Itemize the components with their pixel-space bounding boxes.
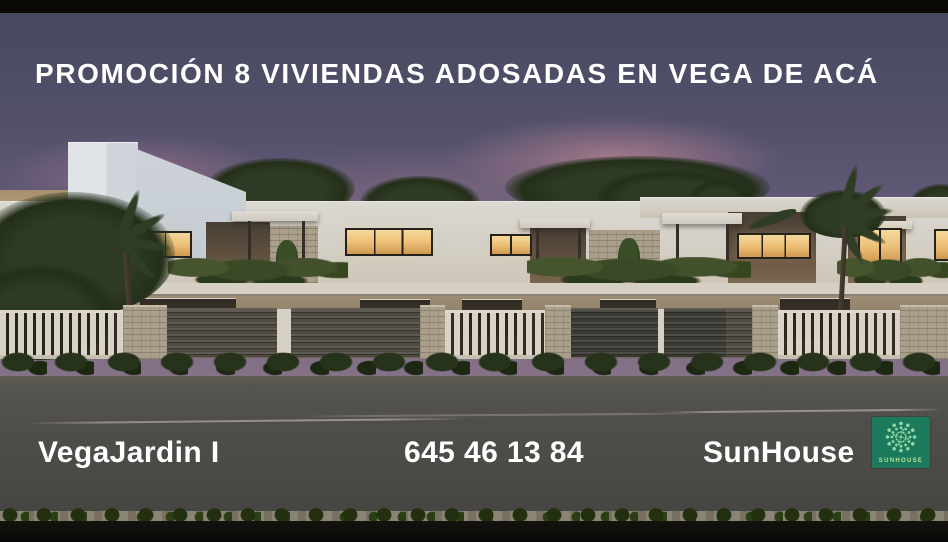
logo-wordmark: SUNHOUSE: [872, 458, 930, 464]
project-name: VegaJardin I: [38, 436, 220, 470]
balcony-planter: [837, 258, 948, 285]
lit-window: [345, 228, 433, 256]
lit-window: [490, 234, 532, 256]
entry-canopy: [232, 211, 318, 221]
entry-canopy: [662, 213, 742, 224]
canopy-post: [248, 221, 251, 261]
phone-number: 645 46 13 84: [404, 436, 584, 470]
bottom-shadow-strip: [0, 521, 948, 542]
promo-banner: PROMOCIÓN 8 VIVIENDAS ADOSADAS EN VEGA D…: [0, 0, 948, 542]
canopy-post: [302, 221, 305, 261]
lit-window: [934, 229, 948, 261]
entry-canopy: [520, 218, 590, 228]
lit-window: [737, 233, 811, 259]
balcony-planter: [527, 257, 751, 285]
promo-title: PROMOCIÓN 8 VIVIENDAS ADOSADAS EN VEGA D…: [35, 58, 879, 90]
balcony-planter: [168, 258, 348, 285]
fence-post: [277, 309, 291, 353]
top-letterbox-bar: [0, 0, 948, 13]
brand-name: SunHouse: [703, 436, 855, 470]
sunhouse-logo: SUNHOUSE: [872, 417, 930, 468]
